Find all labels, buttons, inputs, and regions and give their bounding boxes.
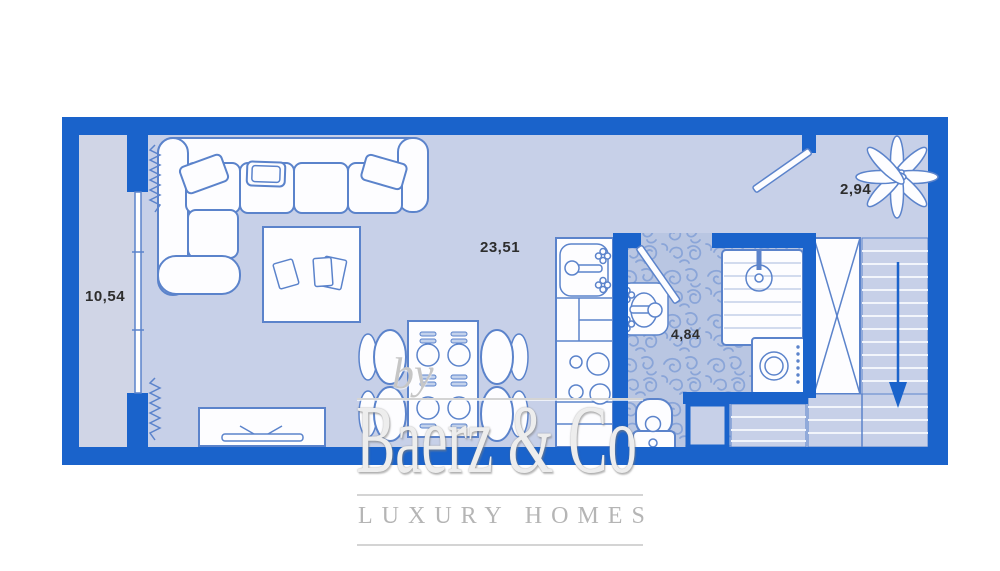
kitchen-sink-icon <box>560 244 611 296</box>
dining-table-icon <box>408 321 478 437</box>
shaft-icon <box>688 404 727 447</box>
wall-bathroom-top <box>712 233 816 248</box>
hall-area-label: 2,94 <box>840 181 871 198</box>
kitchen-counter <box>556 238 613 447</box>
tv-stand-icon <box>199 408 325 446</box>
living-room-area-label: 23,51 <box>480 239 520 256</box>
balcony-area-label: 10,54 <box>85 288 125 305</box>
window-pier-top <box>127 135 148 192</box>
wall-bathroom-bottom <box>683 392 808 404</box>
wall-bathroom-right <box>803 233 816 398</box>
wall-bathroom-left <box>613 233 628 447</box>
coffee-table-icon <box>263 227 360 322</box>
shower-icon <box>722 250 803 345</box>
floor-plan-image: 10,54 23,51 4,84 2,94 by Baerz & Co LUXU… <box>0 0 1000 571</box>
plant-icon <box>856 136 938 218</box>
floor-plan <box>0 0 1000 571</box>
dining-set <box>359 321 528 441</box>
wall-left <box>62 117 79 465</box>
stair-flight-right <box>862 238 928 394</box>
window-pier-bottom <box>127 393 148 447</box>
wall-bathroom-top-stub <box>613 233 641 248</box>
wall-top <box>62 117 948 135</box>
bathroom-area-label: 4,84 <box>671 326 700 342</box>
wall-right <box>928 117 948 465</box>
wall-bottom <box>62 447 948 465</box>
toilet-icon <box>633 399 675 451</box>
washing-machine-icon <box>752 338 805 394</box>
